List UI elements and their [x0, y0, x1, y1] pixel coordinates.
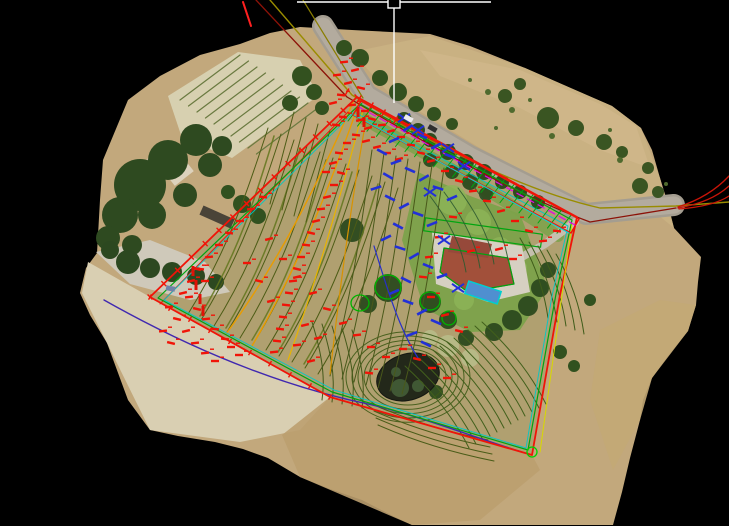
- cad-canvas[interactable]: [0, 0, 729, 526]
- cad-model-space: [0, 0, 729, 526]
